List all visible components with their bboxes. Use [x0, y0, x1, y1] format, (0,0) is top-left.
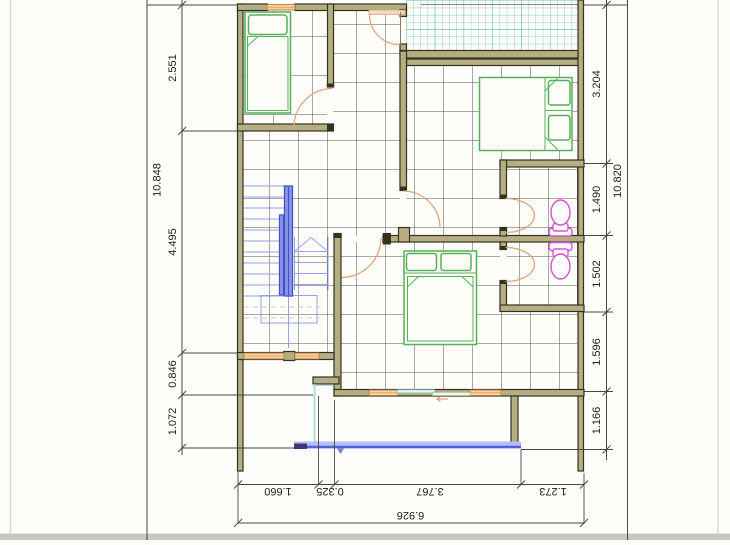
svg-text:2.551: 2.551 [167, 54, 179, 82]
svg-text:10.848: 10.848 [152, 163, 164, 197]
svg-text:6.926: 6.926 [397, 509, 425, 521]
svg-text:3.204: 3.204 [591, 70, 603, 98]
svg-text:1.072: 1.072 [167, 408, 179, 436]
svg-text:1.273: 1.273 [539, 485, 567, 497]
svg-text:1.490: 1.490 [591, 186, 603, 214]
svg-text:1.502: 1.502 [591, 260, 603, 288]
svg-text:4.495: 4.495 [167, 228, 179, 256]
svg-text:1.596: 1.596 [591, 338, 603, 366]
svg-text:0.325: 0.325 [316, 485, 344, 497]
svg-text:3.767: 3.767 [416, 485, 444, 497]
svg-text:10.820: 10.820 [612, 164, 624, 198]
svg-text:0.846: 0.846 [167, 360, 179, 388]
svg-text:1.166: 1.166 [591, 407, 603, 435]
svg-text:1.660: 1.660 [264, 485, 292, 497]
